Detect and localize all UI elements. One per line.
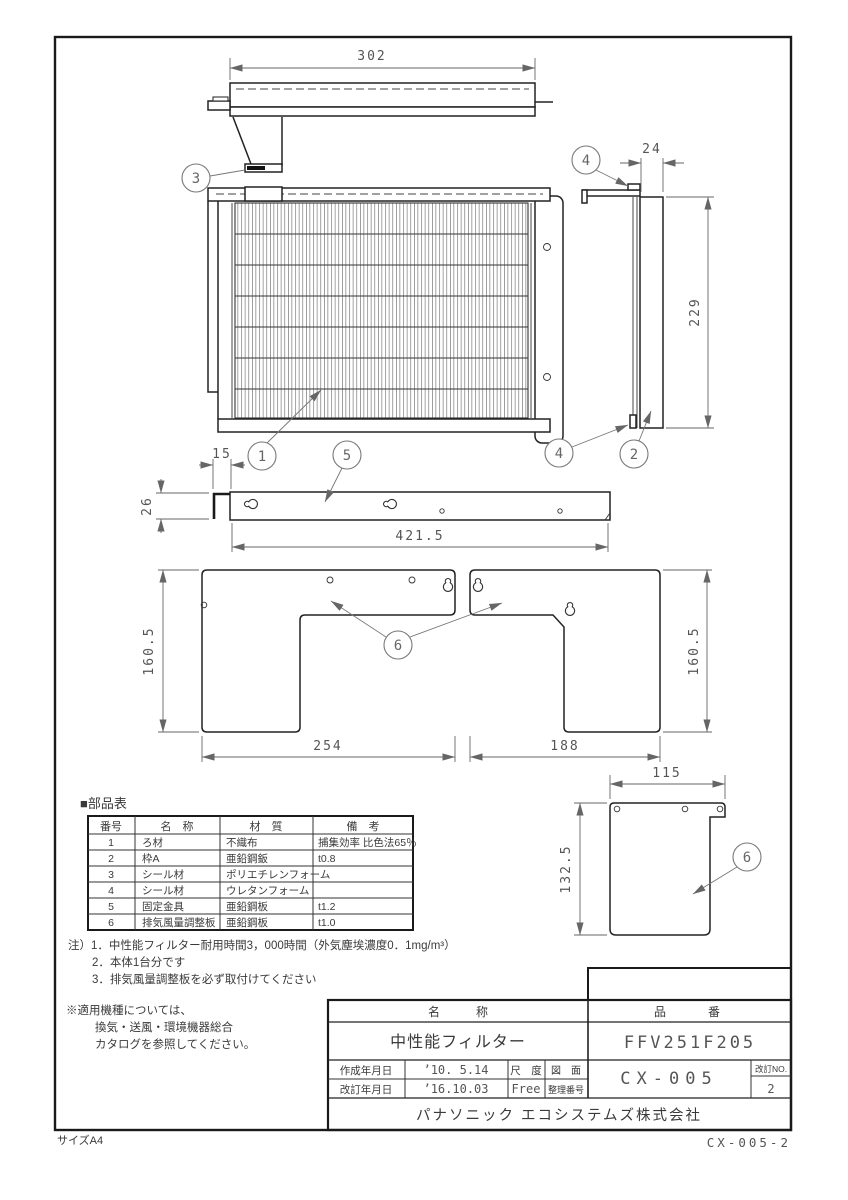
technical-drawing: 302 24 [0,0,848,1200]
bottom-seal-tab [630,415,636,428]
top-bracket [583,190,640,196]
svg-text:4: 4 [555,446,563,462]
svg-text:亜鉛鋼鈑: 亜鉛鋼鈑 [226,852,268,865]
dim-plate-left-height: 160.5 [142,626,157,675]
filter-media [235,203,528,418]
dim-small-plate-height: 132.5 [559,844,574,893]
revision-number: 2 [767,1082,774,1096]
col-header: 備 考 [347,820,380,833]
note-line: ※適用機種については、 [66,1003,192,1017]
revised-date: ’16.10.03 [423,1082,488,1096]
dim-bar-length: 421.5 [395,529,444,544]
ref-number-label: 整理番号 [548,1084,584,1095]
svg-text:捕集効率 比色法65％: 捕集効率 比色法65％ [318,836,417,849]
right-plate-view: 188 160.5 [470,570,712,762]
dim-side-depth: 24 [642,142,662,157]
svg-text:2: 2 [630,447,638,463]
dim-angle-width: 15 [212,447,232,462]
angle-bracket [214,494,230,519]
revised-date-label: 改訂年月日 [340,1083,393,1096]
note-line: 2．本体1台分です [92,955,185,969]
svg-text:枠A: 枠A [142,852,160,865]
svg-text:t1.0: t1.0 [318,917,336,929]
seal-strip [247,166,265,170]
svg-text:t1.2: t1.2 [318,901,336,913]
name-label: 名 称 [428,1004,488,1019]
svg-text:4: 4 [582,153,590,169]
front-view [208,187,563,443]
svg-text:t0.8: t0.8 [318,853,336,865]
svg-text:5: 5 [108,901,114,913]
created-date: ’10. 5.14 [423,1063,488,1077]
svg-text:ろ材: ろ材 [142,836,163,849]
svg-text:4: 4 [108,885,114,897]
dim-plate-right-height: 160.5 [687,626,702,675]
frame-bottom-bar [218,419,550,432]
svg-text:1: 1 [258,449,266,465]
svg-text:固定金具: 固定金具 [142,900,184,913]
svg-text:ポリエチレンフォーム: ポリエチレンフォーム [226,869,330,881]
dim-plate-right-width: 188 [550,739,579,754]
right-plate [470,570,660,732]
drawing-sheet: 302 24 [0,0,848,1200]
right-flange [535,196,563,443]
dim-plate-left-width: 254 [313,739,342,754]
svg-text:6: 6 [108,917,114,929]
drawing-label: 図 面 [551,1065,581,1077]
top-view: 302 [208,49,553,172]
svg-text:亜鉛鋼板: 亜鉛鋼板 [226,900,268,913]
paper-size-label: サイズA4 [57,1133,103,1147]
dim-angle-height: 26 [140,496,155,516]
scale-label: 尺 度 [510,1064,542,1077]
svg-text:不織布: 不織布 [226,836,258,849]
left-tab [208,101,230,110]
note-line: 3．排気風量調整板を必ず取付けてください [92,972,317,986]
frame-top-notch [245,187,282,201]
document-number: CX-005-2 [707,1135,791,1150]
title-block: 名 称 品 番 中性能フィルター FFV251F205 作成年月日 ’10. 5… [328,968,791,1130]
sheet-footer: サイズA4 CX-005-2 [57,1133,791,1150]
left-plate [202,570,455,732]
col-header: 名 称 [161,819,194,833]
part-number-label: 品 番 [654,1005,726,1019]
parts-table: ■部品表 番号 名 称 材 質 備 考 1 ろ材 不織布 捕集効率 比色法65％… [80,796,417,930]
title-block-upper-box [588,968,791,1000]
note-line: 注）1．中性能フィルター耐用時間3，000時間（外気塵埃濃度0．1mg/m³） [68,938,456,952]
fixing-bar [230,492,610,520]
note-line: 換気・送風・環境機器総合 [95,1020,233,1034]
svg-text:3: 3 [192,171,200,187]
svg-text:1: 1 [108,837,114,849]
svg-text:シール材: シール材 [142,884,184,897]
col-header: 番号 [100,820,122,833]
svg-text:5: 5 [343,448,351,464]
svg-text:ウレタンフォーム: ウレタンフォーム [226,885,309,897]
small-plate-view: 115 132.5 [559,766,725,935]
revision-label: 改訂NO. [755,1064,787,1074]
part-number: FFV251F205 [624,1033,756,1053]
svg-text:亜鉛鋼板: 亜鉛鋼板 [226,916,268,929]
svg-text:3: 3 [108,869,114,881]
product-name: 中性能フィルター [390,1033,526,1051]
note-line: カタログを参照してください。 [95,1037,255,1051]
dim-top-width: 302 [357,49,386,64]
col-header: 材 質 [250,819,283,833]
small-plate [610,803,725,935]
fixing-bar-view: 421.5 15 26 [140,447,610,552]
company-name: パナソニック エコシステムズ株式会社 [416,1107,702,1124]
svg-text:2: 2 [108,853,114,865]
parts-table-title: ■部品表 [80,796,127,811]
drawing-number: CX-005 [620,1069,717,1089]
dim-side-height: 229 [688,297,703,326]
scale-value: Free [512,1082,541,1096]
svg-text:シール材: シール材 [142,868,184,881]
svg-text:6: 6 [394,638,402,654]
side-view: 24 229 [582,142,714,428]
frame-side-bar [640,197,663,428]
left-plate-view: 160.5 254 [142,570,455,762]
dim-small-plate-width: 115 [652,766,681,781]
created-date-label: 作成年月日 [340,1064,393,1077]
top-seal-tab [628,184,640,190]
svg-text:排気風量調整板: 排気風量調整板 [142,916,216,929]
svg-text:6: 6 [743,850,751,866]
